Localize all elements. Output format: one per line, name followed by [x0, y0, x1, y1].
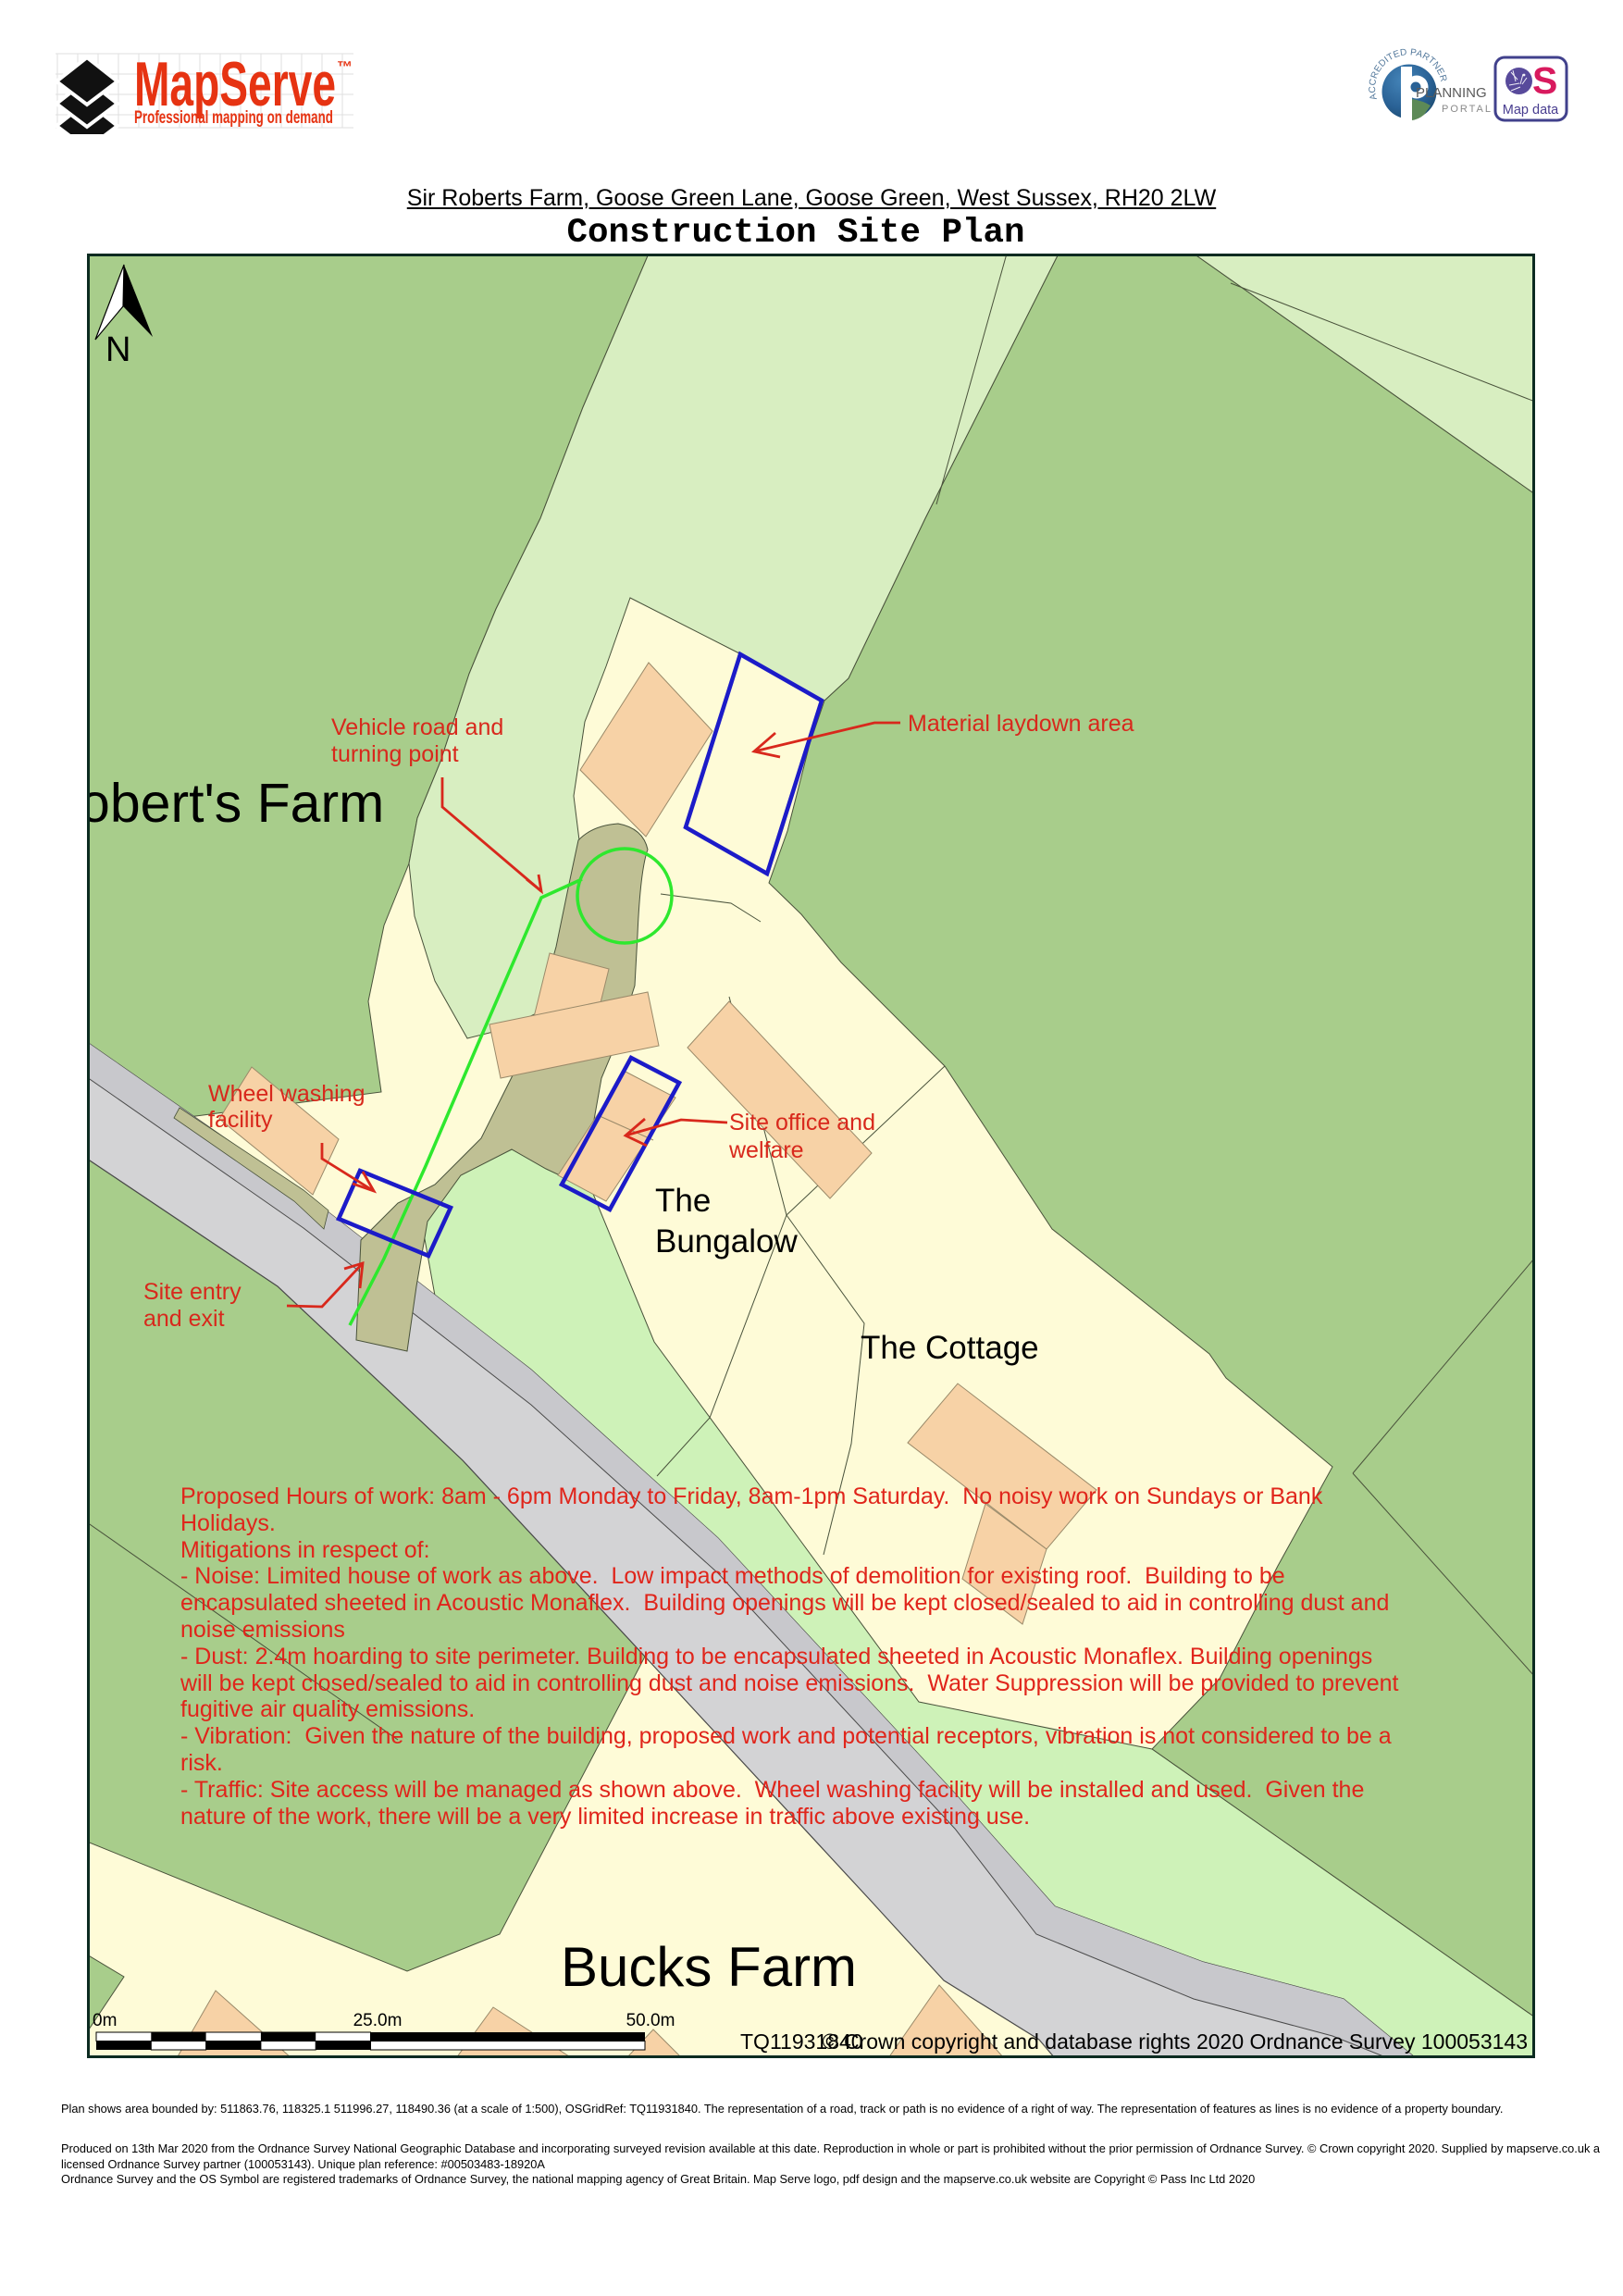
svg-text:Bungalow: Bungalow	[655, 1223, 798, 1260]
svg-text:Material laydown area: Material laydown area	[908, 711, 1134, 737]
svg-text:facility: facility	[208, 1107, 273, 1133]
svg-text:Professional mapping on demand: Professional mapping on demand	[134, 108, 333, 128]
svg-text:PORTAL: PORTAL	[1442, 104, 1493, 115]
svg-text:Site office and: Site office and	[729, 1110, 875, 1136]
svg-text:obert's Farm: obert's Farm	[87, 773, 384, 834]
svg-text:turning point: turning point	[331, 741, 459, 767]
svg-text:0m: 0m	[93, 2011, 117, 2030]
svg-text:N: N	[105, 330, 130, 369]
svg-text:™: ™	[337, 58, 353, 76]
svg-text:Map data: Map data	[1503, 103, 1559, 118]
svg-text:© Crown copyright and database: © Crown copyright and database rights 20…	[823, 2029, 1528, 2054]
svg-text:25.0m: 25.0m	[353, 2011, 403, 2030]
svg-text:Wheel washing: Wheel washing	[208, 1081, 365, 1107]
svg-text:and exit: and exit	[143, 1306, 225, 1332]
svg-text:Vehicle road and: Vehicle road and	[331, 714, 503, 740]
svg-text:Bucks Farm: Bucks Farm	[561, 1936, 857, 1998]
svg-text:50.0m: 50.0m	[626, 2011, 675, 2030]
svg-text:The: The	[655, 1183, 711, 1219]
svg-text:PLANNING: PLANNING	[1416, 85, 1487, 101]
svg-text:Site entry: Site entry	[143, 1279, 242, 1305]
svg-text:S: S	[1532, 59, 1557, 102]
svg-text:welfare: welfare	[728, 1137, 804, 1163]
svg-text:The Cottage: The Cottage	[861, 1330, 1039, 1366]
